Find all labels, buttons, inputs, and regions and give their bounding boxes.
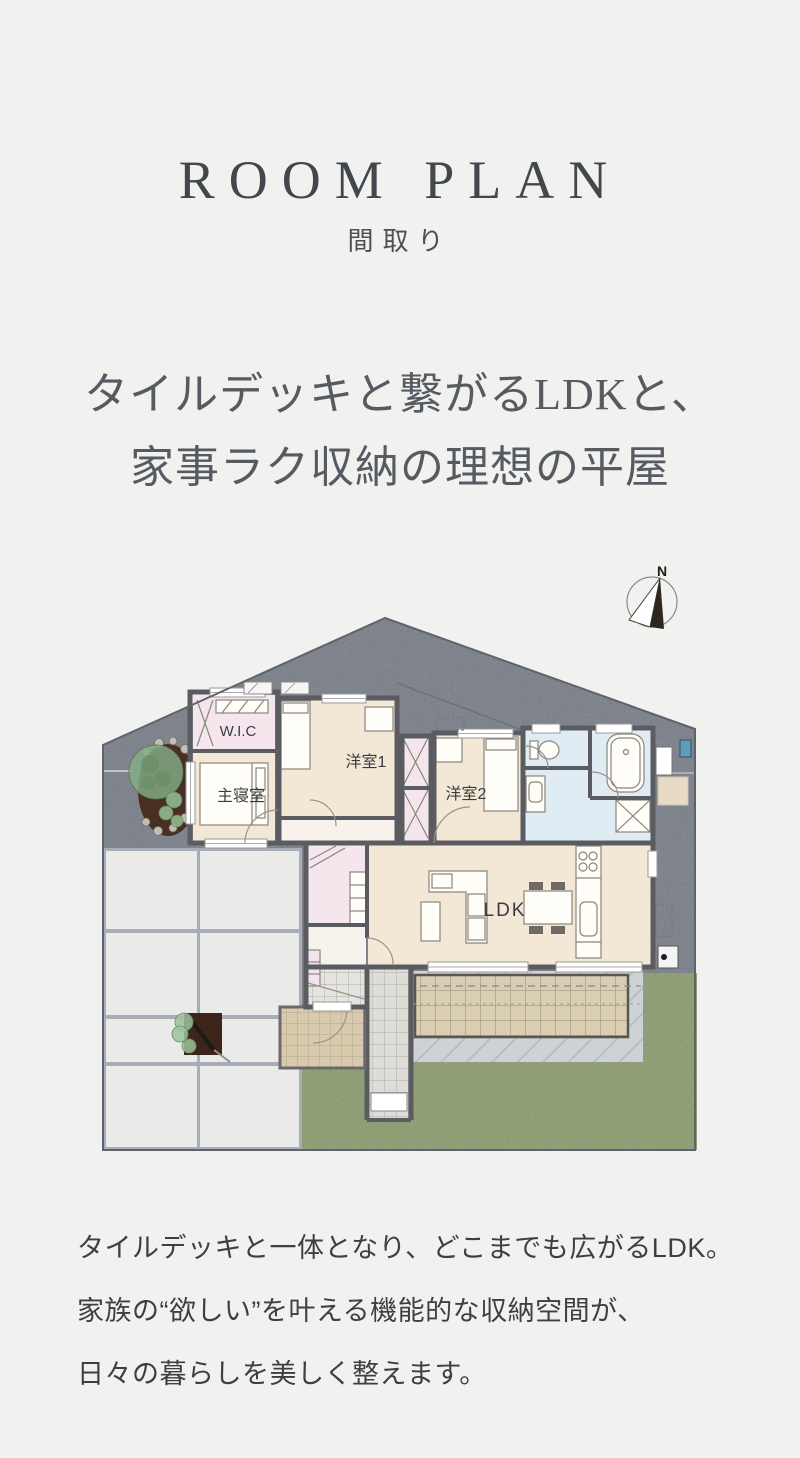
desk-bedroom1	[365, 707, 393, 731]
bedroom1-label: 洋室1	[346, 753, 387, 771]
kitchen-sink	[580, 902, 597, 936]
master-bedroom-label: 主寝室	[217, 786, 265, 805]
dining-table	[524, 891, 572, 924]
toilet-fixture	[530, 741, 538, 759]
description-line1: タイルデッキと一体となり、どこまでも広がるLDK。	[77, 1217, 733, 1280]
water-heater	[656, 747, 672, 775]
headline-line2: 家事ラク収納の理想の平屋	[0, 431, 800, 504]
floor-plan-image: W.I.C 主寝室 洋室1 洋室2 LDK N	[95, 540, 710, 1165]
entrance-walkway	[367, 967, 411, 1120]
side-table	[421, 902, 440, 941]
tree-canopy	[129, 745, 183, 799]
bedroom2-label: 洋室2	[446, 785, 487, 803]
entrance-step	[371, 1093, 407, 1111]
desk-bedroom2	[436, 738, 462, 762]
description-line3: 日々の暮らしを美しく整えます。	[77, 1343, 733, 1406]
compass-north-label: N	[657, 563, 667, 579]
page-subtitle: 間取り	[0, 226, 800, 258]
description-text: タイルデッキと一体となり、どこまでも広がるLDK。 家族の“欲しい”を叶える機能…	[77, 1217, 733, 1406]
paved-driveway	[103, 848, 302, 1150]
description-line2: 家族の“欲しい”を叶える機能的な収納空間が、	[77, 1280, 733, 1343]
tile-deck	[413, 975, 643, 1037]
headline: タイルデッキと繋がるLDKと、 家事ラク収納の理想の平屋	[0, 358, 800, 504]
wic-label: W.I.C	[220, 723, 257, 740]
corridor-floor	[279, 818, 396, 842]
service-pad	[658, 777, 688, 805]
entrance-porch	[280, 1007, 365, 1068]
headline-line1: タイルデッキと繋がるLDKと、	[0, 358, 800, 431]
meter-box	[680, 740, 691, 757]
ldk-label: LDK	[484, 900, 527, 921]
compass-icon: N	[627, 563, 677, 629]
page-title: ROOM PLAN	[0, 150, 800, 210]
